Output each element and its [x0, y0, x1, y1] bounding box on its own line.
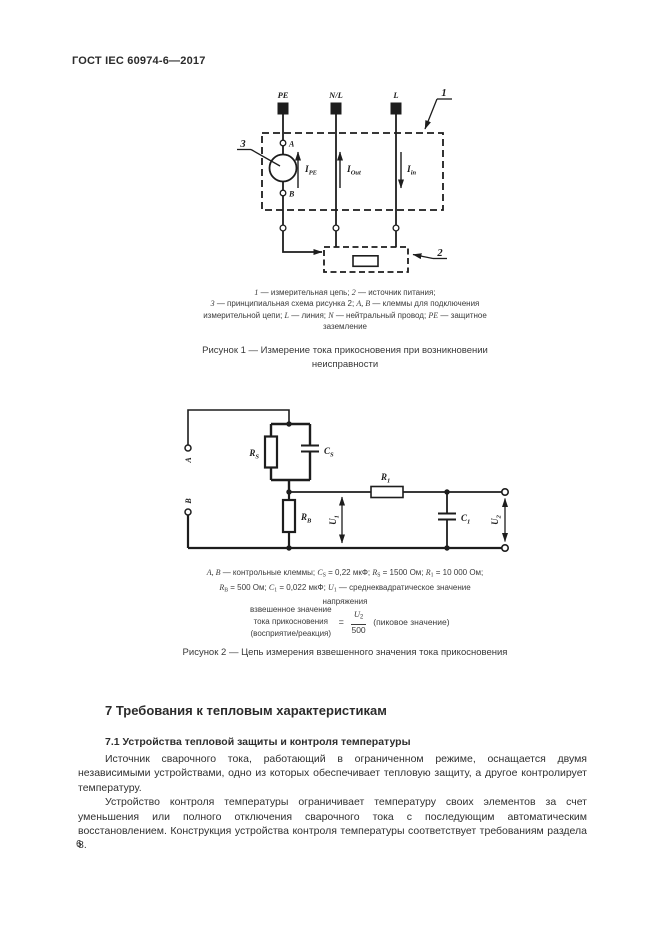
- figure-1-caption: Рисунок 1 — Измерение тока прикосновения…: [60, 344, 630, 371]
- rb-label: RB: [300, 512, 312, 525]
- connector-nl: [333, 225, 339, 231]
- resistor-rb: [283, 500, 295, 532]
- figure-2-caption: Рисунок 2 — Цепь измерения взвешенного з…: [60, 646, 630, 660]
- fraction: U2 500: [351, 610, 366, 634]
- figure-2-legend: A, B — контрольные клеммы; CS = 0,22 мкФ…: [60, 567, 630, 608]
- r1-label: R1: [380, 472, 390, 485]
- u2-label: U2: [490, 514, 503, 525]
- callout-power-source: 2: [413, 248, 447, 259]
- terminal-b-circle: [185, 509, 191, 515]
- figure-2-diagram: A RS CS R1: [175, 400, 525, 560]
- source-resistor: [353, 256, 378, 266]
- caption-line: Рисунок 1 — Измерение тока прикосновения…: [60, 344, 630, 358]
- terminal-a-label: A: [184, 457, 193, 464]
- resistor-rs: [265, 437, 277, 468]
- legend-line: 3 — принципиальная схема рисунка 2; A, B…: [60, 298, 630, 309]
- power-source: [324, 247, 408, 272]
- callout-2-label: 2: [436, 248, 443, 259]
- terminal-b-label: B: [184, 498, 193, 505]
- terminal-square-l: [391, 103, 402, 115]
- resistor-r1: [371, 487, 403, 498]
- weighted-touch-current-formula: взвешенное значение тока прикосновения (…: [250, 604, 450, 641]
- section-7-1-heading: 7.1 Устройства тепловой защиты и контрол…: [105, 736, 411, 748]
- document-header: ГОСТ IEC 60974-6—2017: [72, 55, 206, 67]
- paragraph: Устройство контроля температуры ограничи…: [78, 795, 587, 853]
- terminal-label-pe: PE: [278, 90, 289, 100]
- formula-note: (пиковое значение): [373, 617, 449, 627]
- section-7-heading: 7 Требования к тепловым характеристикам: [105, 703, 387, 718]
- page-number: 6: [76, 839, 82, 850]
- mains-terminals: PE N/L L: [278, 90, 402, 115]
- u1-label: U1: [328, 515, 341, 525]
- output-terminal-bottom: [502, 545, 508, 551]
- connector-l: [393, 225, 399, 231]
- terminal-label-nl: N/L: [328, 90, 343, 100]
- terminal-b-bottom-rail: B: [184, 498, 508, 552]
- rs-cs-parallel-block: RS CS: [248, 421, 334, 492]
- terminal-label-l: L: [392, 90, 398, 100]
- u2-measurement: U2: [490, 499, 505, 542]
- callout-measuring-circuit: 1: [425, 88, 452, 129]
- section-body: Источник сварочного тока, работающий в о…: [78, 752, 587, 853]
- callout-3-label: 3: [239, 139, 245, 150]
- clamp-point-a: [280, 140, 286, 146]
- caption-line: Рисунок 2 — Цепь измерения взвешенного з…: [60, 646, 630, 660]
- legend-line: A, B — контрольные клеммы; CS = 0,22 мкФ…: [60, 567, 630, 582]
- legend-line: заземление: [60, 321, 630, 332]
- clamp-point-b: [280, 190, 286, 196]
- caption-line: неисправности: [60, 358, 630, 372]
- legend-line: 1 — измерительная цепь; 2 — источник пит…: [60, 287, 630, 298]
- rs-label: RS: [248, 448, 259, 461]
- u1-measurement: U1: [328, 497, 342, 543]
- legend-line: измерительной цепи; L — линия; N — нейтр…: [60, 310, 630, 321]
- output-terminal-top: [502, 489, 508, 495]
- legend-line: RB = 500 Ом; C1 = 0,022 мкФ; U1 — средне…: [60, 582, 630, 597]
- terminal-square-nl: [331, 103, 342, 115]
- c1-branch: C1: [438, 489, 470, 550]
- cs-label: CS: [324, 446, 334, 459]
- callout-1-label: 1: [441, 88, 446, 99]
- formula-description: взвешенное значение тока прикосновения (…: [250, 604, 332, 641]
- point-a-label: A: [288, 140, 295, 149]
- figure-1-diagram: PE N/L L 1 A B 3: [230, 85, 465, 290]
- rb-branch: RB: [283, 492, 312, 551]
- terminal-square-pe: [278, 103, 289, 115]
- figure-1-legend: 1 — измерительная цепь; 2 — источник пит…: [60, 287, 630, 332]
- document-page: ГОСТ IEC 60974-6—2017 PE N/L L 1: [0, 0, 661, 935]
- measuring-instrument-circle: [270, 155, 297, 182]
- connector-pe: [280, 225, 286, 231]
- point-b-label: B: [288, 190, 295, 199]
- paragraph: Источник сварочного тока, работающий в о…: [78, 752, 587, 795]
- top-rail: R1: [286, 472, 508, 498]
- equals-sign: =: [339, 617, 344, 627]
- terminal-a-circle: [185, 445, 191, 451]
- c1-label: C1: [461, 513, 470, 526]
